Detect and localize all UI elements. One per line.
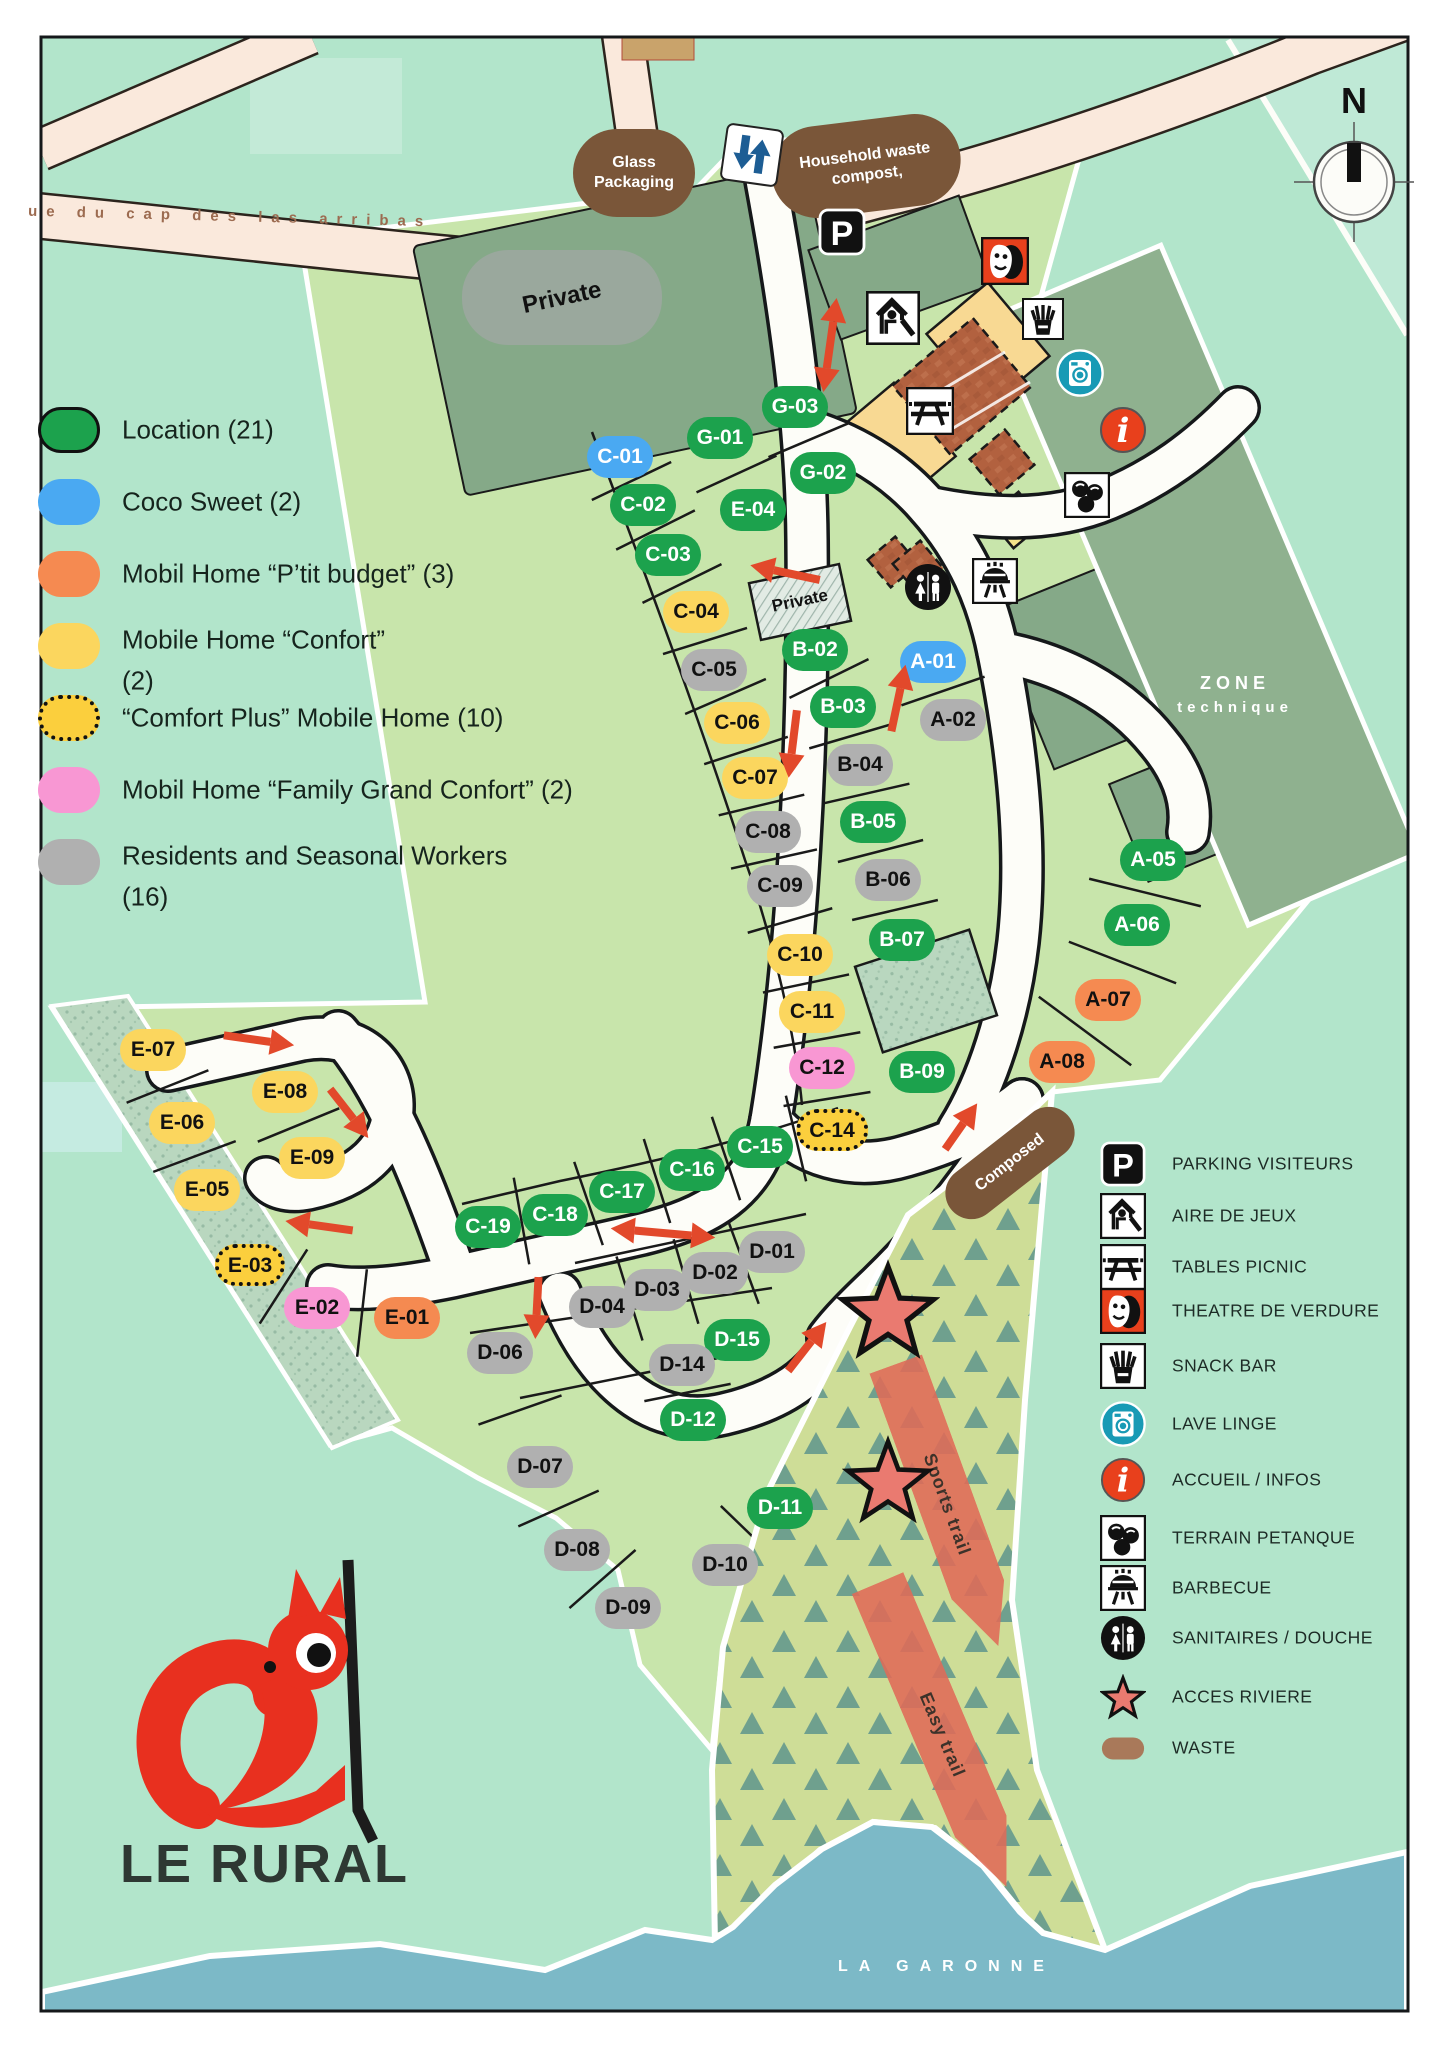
plot-E-07: E-07 xyxy=(120,1029,186,1071)
plot-C-11: C-11 xyxy=(779,991,845,1033)
laundry-icon xyxy=(1056,349,1104,397)
plot-D-02: D-02 xyxy=(682,1252,748,1294)
plot-E-02: E-02 xyxy=(284,1287,350,1329)
plot-A-02: A-02 xyxy=(920,699,986,741)
legend-item-picnic: TABLES PICNIC xyxy=(1100,1243,1400,1291)
plot-B-09: B-09 xyxy=(889,1051,955,1093)
playground-icon xyxy=(866,291,920,345)
logo-text: LE RURAL xyxy=(120,1833,409,1895)
svg-text:P: P xyxy=(1112,1147,1134,1183)
budget-swatch xyxy=(38,551,100,597)
legend-label: PARKING VISITEURS xyxy=(1172,1154,1354,1175)
plot-E-06: E-06 xyxy=(149,1102,215,1144)
legend-label: BARBECUE xyxy=(1172,1578,1271,1599)
legend-label: ACCUEIL / INFOS xyxy=(1172,1470,1321,1491)
plot-C-06: C-06 xyxy=(704,702,770,744)
legend-label: Mobil Home “P’tit budget” (3) xyxy=(122,559,454,590)
plot-E-05: E-05 xyxy=(174,1169,240,1211)
legend-item-sanitaires: SANITAIRES / DOUCHE xyxy=(1100,1614,1400,1662)
plot-D-09: D-09 xyxy=(595,1587,661,1629)
location-swatch xyxy=(38,407,100,453)
sanitaires-icon xyxy=(1100,1615,1146,1661)
glass-packaging-sign: Glass Packaging xyxy=(573,129,695,217)
two-way-traffic-sign xyxy=(719,122,785,188)
legend-label: LAVE LINGE xyxy=(1172,1414,1277,1435)
legend-label-line2: (2) xyxy=(122,665,154,696)
plot-B-06: B-06 xyxy=(855,859,921,901)
legend-label: Mobile Home “Confort” xyxy=(122,624,385,655)
resident-swatch xyxy=(38,839,100,885)
family-swatch xyxy=(38,767,100,813)
parking-icon: P xyxy=(818,208,866,256)
plot-C-09: C-09 xyxy=(747,865,813,907)
plot-B-03: B-03 xyxy=(810,686,876,728)
plot-C-08: C-08 xyxy=(735,811,801,853)
legend-item-family: Mobil Home “Family Grand Confort” (2) xyxy=(38,767,678,813)
plot-D-12: D-12 xyxy=(660,1399,726,1441)
plot-D-08: D-08 xyxy=(544,1529,610,1571)
sanitaires-icon xyxy=(904,563,952,611)
plot-A-08: A-08 xyxy=(1029,1041,1095,1083)
plot-G-03: G-03 xyxy=(762,386,828,428)
plot-C-19: C-19 xyxy=(455,1206,521,1248)
svg-text:i: i xyxy=(1117,1461,1129,1500)
star-icon xyxy=(1100,1674,1146,1720)
plot-E-08: E-08 xyxy=(252,1071,318,1113)
plot-B-05: B-05 xyxy=(840,801,906,843)
plot-D-04: D-04 xyxy=(569,1286,635,1328)
plot-B-04: B-04 xyxy=(827,744,893,786)
svg-text:P: P xyxy=(831,215,854,253)
legend-label: Residents and Seasonal Workers xyxy=(122,840,507,871)
petanque-icon xyxy=(1100,1515,1146,1561)
plot-D-07: D-07 xyxy=(507,1446,573,1488)
plot-C-16: C-16 xyxy=(659,1149,725,1191)
legend-item-barbecue: BARBECUE xyxy=(1100,1564,1400,1612)
legend-item-petanque: TERRAIN PETANQUE xyxy=(1100,1514,1400,1562)
plot-E-01: E-01 xyxy=(374,1297,440,1339)
legend-label: ACCES RIVIERE xyxy=(1172,1687,1312,1708)
info-icon: i xyxy=(1099,406,1147,454)
plot-C-15: C-15 xyxy=(727,1126,793,1168)
picnic-icon xyxy=(1100,1244,1146,1290)
plot-C-17: C-17 xyxy=(589,1171,655,1213)
legend-item-budget: Mobil Home “P’tit budget” (3) xyxy=(38,551,678,597)
legend-item-laundry: LAVE LINGE xyxy=(1100,1400,1400,1448)
plot-D-14: D-14 xyxy=(649,1344,715,1386)
legend-label: TERRAIN PETANQUE xyxy=(1172,1528,1355,1549)
snack-icon xyxy=(1022,298,1064,340)
legend-item-theatre: THEATRE DE VERDURE xyxy=(1100,1287,1400,1335)
legend-item-waste: WASTE xyxy=(1100,1724,1400,1772)
plot-E-04: E-04 xyxy=(720,489,786,531)
plot-D-10: D-10 xyxy=(692,1544,758,1586)
compass-dial xyxy=(1294,122,1414,242)
petanque-icon xyxy=(1064,472,1110,518)
plot-E-03: E-03 xyxy=(215,1244,285,1286)
river-access-star-icon xyxy=(842,1434,934,1526)
plot-G-02: G-02 xyxy=(790,452,856,494)
legend-item-confortplus: “Comfort Plus” Mobile Home (10) xyxy=(38,695,678,741)
plot-G-01: G-01 xyxy=(687,417,753,459)
compass-rose: N xyxy=(1294,80,1414,245)
picnic-icon xyxy=(906,387,954,435)
legend-label-line2: (16) xyxy=(122,881,168,912)
legend-item-coco: Coco Sweet (2) xyxy=(38,479,678,525)
plot-C-18: C-18 xyxy=(522,1194,588,1236)
legend-label: TABLES PICNIC xyxy=(1172,1257,1307,1278)
coco-swatch xyxy=(38,479,100,525)
legend-item-confort: Mobile Home “Confort”(2) xyxy=(38,623,678,669)
plot-C-12: C-12 xyxy=(789,1047,855,1089)
plot-B-07: B-07 xyxy=(869,919,935,961)
plot-D-11: D-11 xyxy=(747,1487,813,1529)
legend-label: SANITAIRES / DOUCHE xyxy=(1172,1628,1373,1649)
legend-label: “Comfort Plus” Mobile Home (10) xyxy=(122,703,503,734)
plot-C-05: C-05 xyxy=(681,649,747,691)
river-access-star-icon xyxy=(836,1258,940,1362)
plot-D-15: D-15 xyxy=(704,1319,770,1361)
squirrel-logo-icon xyxy=(120,1555,400,1845)
svg-text:i: i xyxy=(1117,411,1130,451)
confort-swatch xyxy=(38,623,100,669)
legend-item-parking: PPARKING VISITEURS xyxy=(1100,1140,1400,1188)
barbecue-icon xyxy=(1100,1565,1146,1611)
legend-item-snack: SNACK BAR xyxy=(1100,1342,1400,1390)
legend-item-playground: AIRE DE JEUX xyxy=(1100,1192,1400,1240)
legend-item-resident: Residents and Seasonal Workers(16) xyxy=(38,839,678,885)
theatre-icon xyxy=(981,237,1029,285)
legend-label: Location (21) xyxy=(122,415,274,446)
parking-icon: P xyxy=(1100,1141,1146,1187)
legend-item-info: iACCUEIL / INFOS xyxy=(1100,1456,1400,1504)
legend-label: AIRE DE JEUX xyxy=(1172,1206,1296,1227)
plot-A-06: A-06 xyxy=(1104,904,1170,946)
two-way-arrows-icon xyxy=(722,125,783,186)
info-icon: i xyxy=(1100,1457,1146,1503)
snack-icon xyxy=(1100,1343,1146,1389)
direction-arrow xyxy=(520,1272,553,1339)
legend-item-star: ACCES RIVIERE xyxy=(1100,1673,1400,1721)
zone-technique-label: ZONE technique xyxy=(1150,670,1320,720)
confortplus-swatch xyxy=(38,695,100,741)
campsite-map: Sports trail Easy trail ue du cap des la… xyxy=(0,0,1449,2048)
plot-C-14: C-14 xyxy=(796,1109,868,1151)
legend-label: Coco Sweet (2) xyxy=(122,487,301,518)
plot-D-01: D-01 xyxy=(739,1231,805,1273)
logo: LE RURAL xyxy=(120,1555,400,1895)
theatre-icon xyxy=(1100,1288,1146,1334)
river-label: LA GARONNE xyxy=(838,1958,1055,1976)
plot-C-10: C-10 xyxy=(767,934,833,976)
legend-label: SNACK BAR xyxy=(1172,1356,1277,1377)
playground-icon xyxy=(1100,1193,1146,1239)
plot-E-09: E-09 xyxy=(279,1137,345,1179)
legend-item-location: Location (21) xyxy=(38,407,678,453)
compass-north-label: N xyxy=(1341,80,1367,122)
plot-A-05: A-05 xyxy=(1120,839,1186,881)
laundry-icon xyxy=(1100,1401,1146,1447)
waste-icon xyxy=(1100,1725,1146,1771)
plot-B-02: B-02 xyxy=(782,629,848,671)
legend-label: THEATRE DE VERDURE xyxy=(1172,1301,1379,1322)
legend-label: Mobil Home “Family Grand Confort” (2) xyxy=(122,775,573,806)
barbecue-icon xyxy=(972,558,1018,604)
legend-label: WASTE xyxy=(1172,1738,1236,1759)
plot-A-07: A-07 xyxy=(1075,979,1141,1021)
